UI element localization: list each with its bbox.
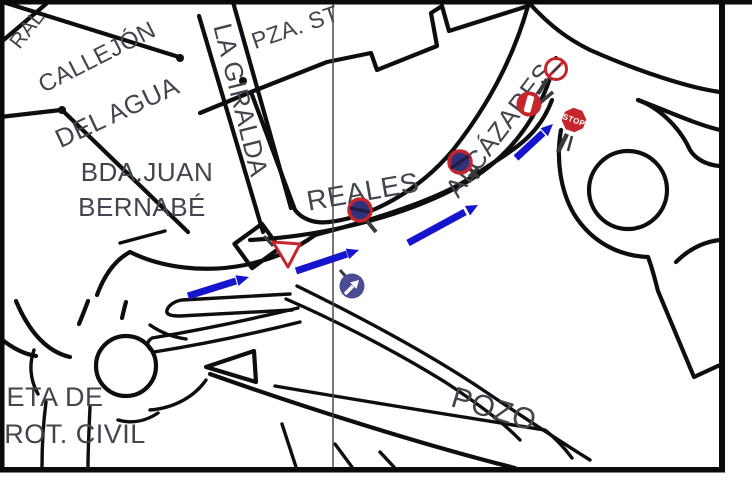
- road-edge: [676, 240, 720, 262]
- road-edge: [380, 452, 394, 467]
- road-edge: [0, 338, 36, 356]
- road-edge: [122, 302, 126, 318]
- road-edge: [150, 380, 206, 410]
- road-edge: [16, 301, 70, 357]
- street-labels: RAL CALLEJÓN DEL AGUA LA GIRALDA PZA. ST…: [4, 0, 559, 449]
- junction-dot: [176, 54, 184, 62]
- road-edge: [335, 444, 352, 467]
- left-roundabout-circle: [96, 336, 156, 396]
- right-roundabout-circle: [589, 151, 667, 229]
- road-edge: [648, 257, 720, 377]
- stop-sign: STOP: [558, 104, 590, 152]
- label-eta-de: ETA DE: [6, 382, 103, 412]
- road-edge: [79, 301, 88, 324]
- route-arrow-1: [188, 275, 249, 296]
- mandatory-direction-sign: [340, 270, 365, 299]
- road-edge: [297, 286, 590, 460]
- road-edge: [282, 424, 296, 467]
- road-edge: [97, 252, 130, 295]
- frame-right: [719, 0, 725, 472]
- label-bernabe: BERNABÉ: [78, 192, 206, 222]
- road-edge: [120, 231, 165, 243]
- label-pozo: POZO: [447, 381, 540, 438]
- street-map-canvas: RAL CALLEJÓN DEL AGUA LA GIRALDA PZA. ST…: [0, 0, 752, 483]
- yield-sign: [264, 236, 300, 267]
- label-rot-civil: ROT. CIVIL: [4, 419, 146, 449]
- road-edge: [0, 110, 61, 117]
- frame-bottom: [0, 467, 725, 473]
- road-edge: [559, 130, 648, 257]
- label-pza-st: PZA. ST: [248, 0, 342, 54]
- route-arrow-2: [296, 249, 359, 271]
- route-arrow-3: [408, 205, 478, 243]
- frame-top: [0, 0, 752, 5]
- road-network: [0, 2, 720, 468]
- map: RAL CALLEJÓN DEL AGUA LA GIRALDA PZA. ST…: [0, 0, 752, 483]
- junction-dot: [58, 106, 66, 114]
- frame-left: [0, 0, 5, 472]
- label-bda-juan: BDA.JUAN: [81, 157, 214, 187]
